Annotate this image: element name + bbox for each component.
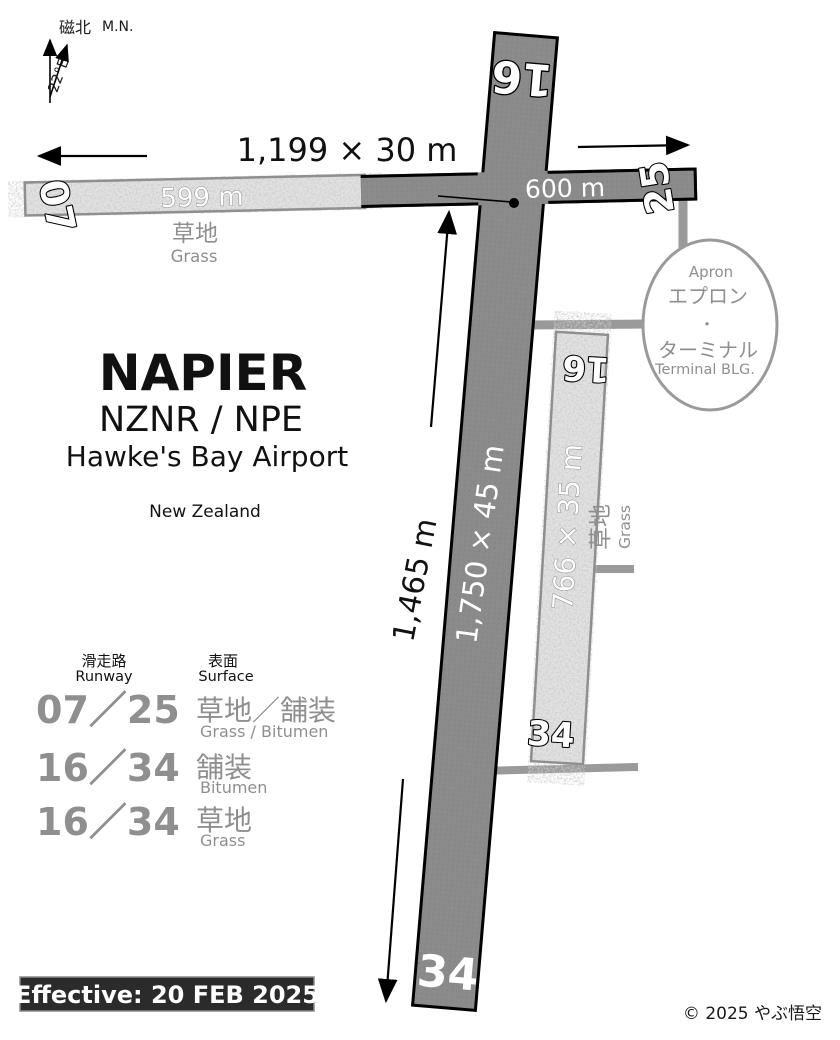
apron-label-en: Apron xyxy=(689,263,733,281)
grass-0725-label-en: Grass xyxy=(171,247,218,266)
length-arrow-up xyxy=(431,212,449,427)
airport-city-title: NAPIER xyxy=(99,344,307,402)
terminal-label-jp: ターミナル xyxy=(658,338,758,362)
apron-label-jp: エプロン xyxy=(668,284,748,308)
effective-date-label: Effective: 20 FEB 2025 xyxy=(15,981,319,1009)
table-row: 07／25 草地／舗装 Grass / Bitumen xyxy=(36,688,336,741)
airport-name: Hawke's Bay Airport xyxy=(66,440,348,473)
table-header-runway-en: Runway xyxy=(75,669,133,685)
airport-country: New Zealand xyxy=(149,502,261,522)
runway-end-label-16-grass: 16 xyxy=(561,347,611,390)
arp-dot xyxy=(509,198,519,208)
runway-end-label-34-grass: 34 xyxy=(526,714,576,757)
table-row2-surface-en: Bitumen xyxy=(200,778,267,797)
table-row2-runway: 16／34 xyxy=(36,746,180,790)
table-row: 16／34 草地 Grass xyxy=(36,800,252,850)
runway-0725-dimension-label: 1,199 × 30 m xyxy=(237,131,458,169)
table-header-surface-jp: 表面 xyxy=(208,652,238,670)
taxiway-south-stub xyxy=(478,767,638,771)
airport-codes: NZNR / NPE xyxy=(99,400,303,440)
grass-0725-label-jp: 草地 xyxy=(172,221,218,247)
table-row1-surface-en: Grass / Bitumen xyxy=(200,722,328,741)
runway-25-direction-arrow xyxy=(578,145,688,147)
grass-1634-label-en: Grass xyxy=(616,505,634,549)
runway-0725-bitumen-length-label: 600 m xyxy=(525,173,606,204)
grass-1634-label-jp: 草地 xyxy=(588,504,614,550)
grass-1634-annotation: 草地 Grass xyxy=(588,504,634,550)
copyright-label: © 2025 やぶ悟空 xyxy=(683,1004,822,1024)
table-row3-runway: 16／34 xyxy=(36,800,180,844)
taxiway-main-to-apron xyxy=(528,324,648,325)
runway-end-label-16-main: 16 xyxy=(489,50,554,106)
airport-diagram-page: 磁北 M.N. 22°E 1,199 × 30 m Apron エプロン ・ タ… xyxy=(0,0,840,1040)
airport-diagram: 磁北 M.N. 22°E 1,199 × 30 m Apron エプロン ・ タ… xyxy=(0,0,840,1040)
table-row: 16／34 舗装 Bitumen xyxy=(36,746,267,797)
length-arrow-down xyxy=(386,779,403,1001)
runway-end-label-25: 25 xyxy=(631,158,683,217)
runway-main-length-from-intersection-label: 1,465 m xyxy=(386,516,444,645)
compass-label-jp: 磁北 xyxy=(59,18,91,37)
compass-label-en: M.N. xyxy=(102,19,133,35)
terminal-label-en: Terminal BLG. xyxy=(654,362,755,378)
table-row1-runway: 07／25 xyxy=(36,688,180,732)
table-header-surface-en: Surface xyxy=(198,669,253,685)
apron-separator-dot: ・ xyxy=(699,315,715,334)
table-header-runway-jp: 滑走路 xyxy=(81,652,126,670)
runway-end-label-07: 07 xyxy=(30,176,84,237)
table-row3-surface-en: Grass xyxy=(200,831,245,850)
runway-end-label-34-main: 34 xyxy=(415,946,480,1002)
runway-0725-grass-length-label: 599 m xyxy=(160,182,244,214)
